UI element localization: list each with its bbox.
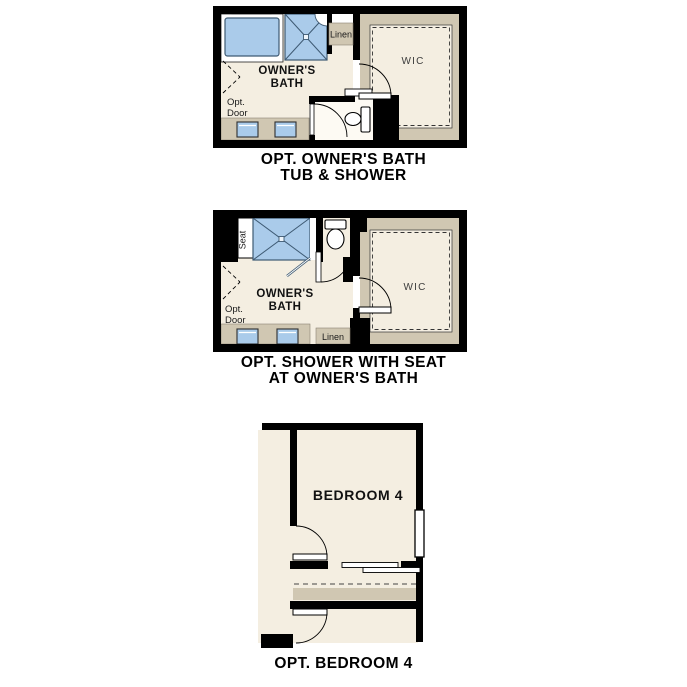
opt-door-label-line2: Door (225, 315, 246, 326)
sink-icon (275, 122, 296, 137)
tub-icon (225, 18, 279, 56)
floor-plan-bedroom-4: BEDROOM 4 (258, 417, 430, 649)
window (415, 510, 424, 557)
toilet-tank-icon (325, 220, 346, 229)
floorplan-options-sheet: OWNER'S BATH WIC Linen Opt. Door OPT. OW… (0, 0, 687, 687)
closet-wall (290, 561, 328, 569)
wall-block (350, 318, 370, 344)
closet-shelf (293, 588, 416, 600)
wic-door-leaf (359, 93, 391, 99)
caption-line: TUB & SHOWER (0, 168, 687, 184)
wall-block (221, 218, 238, 262)
opt-door-label-line1: Opt. (227, 97, 245, 108)
toilet-door-leaf (316, 252, 321, 282)
wall-top (262, 423, 423, 430)
wall-interior (290, 430, 297, 526)
sink-icon (237, 122, 258, 137)
wic-label: WIC (401, 56, 424, 67)
closet-wall (290, 601, 423, 609)
shower-drain (304, 35, 309, 40)
seat-label: Seat (238, 230, 248, 249)
caption-line: OPT. BEDROOM 4 (0, 656, 687, 672)
linen-label: Linen (330, 30, 352, 40)
wall-block (373, 95, 399, 140)
wic-floor (370, 230, 452, 332)
hall-door-leaf (293, 609, 327, 615)
room-label-bath: BATH (269, 301, 302, 313)
caption-shower-with-seat: OPT. SHOWER WITH SEAT AT OWNER'S BATH (0, 355, 687, 387)
toilet-bowl-icon (345, 113, 361, 126)
caption-line: OPT. OWNER'S BATH (0, 152, 687, 168)
caption-line: OPT. SHOWER WITH SEAT (0, 355, 687, 371)
caption-line: AT OWNER'S BATH (0, 371, 687, 387)
wall-stub (309, 96, 315, 104)
sink-icon (277, 329, 298, 344)
linen-label: Linen (322, 332, 344, 342)
bedroom-door-leaf (293, 554, 327, 560)
floor-plan-shower-with-seat: Seat OWNER'S BATH WIC Linen Opt. Door (213, 210, 467, 352)
linen-door-opening (332, 14, 353, 23)
toilet-tank-icon (361, 107, 370, 132)
shower-drain (279, 237, 284, 242)
wic-door-opening (353, 276, 360, 308)
floor-plan-owners-bath-tub-shower: OWNER'S BATH WIC Linen Opt. Door (213, 6, 467, 148)
room-label-bedroom-4: BEDROOM 4 (313, 487, 403, 503)
wall (309, 96, 355, 102)
wic-label: WIC (403, 282, 426, 293)
sink-icon (237, 329, 258, 344)
wic-door-leaf (359, 307, 391, 313)
opt-door-label-line2: Door (227, 108, 248, 119)
caption-bedroom-4: OPT. BEDROOM 4 (0, 656, 687, 672)
closet-bypass-door (363, 568, 420, 573)
closet-bypass-door (342, 563, 398, 568)
wall-bottom-left (261, 634, 293, 648)
opt-door-label-line1: Opt. (225, 304, 243, 315)
toilet-bowl-icon (327, 229, 344, 249)
room-label-bath: BATH (271, 78, 304, 90)
room-label-owners: OWNER'S (258, 65, 315, 77)
shower-glass-panel (310, 218, 316, 260)
caption-owners-bath-tub-shower: OPT. OWNER'S BATH TUB & SHOWER (0, 152, 687, 184)
bedroom-floor (258, 430, 418, 643)
toilet-door-leaf (310, 104, 314, 135)
wall-stub (309, 135, 315, 140)
room-label-owners: OWNER'S (256, 288, 313, 300)
